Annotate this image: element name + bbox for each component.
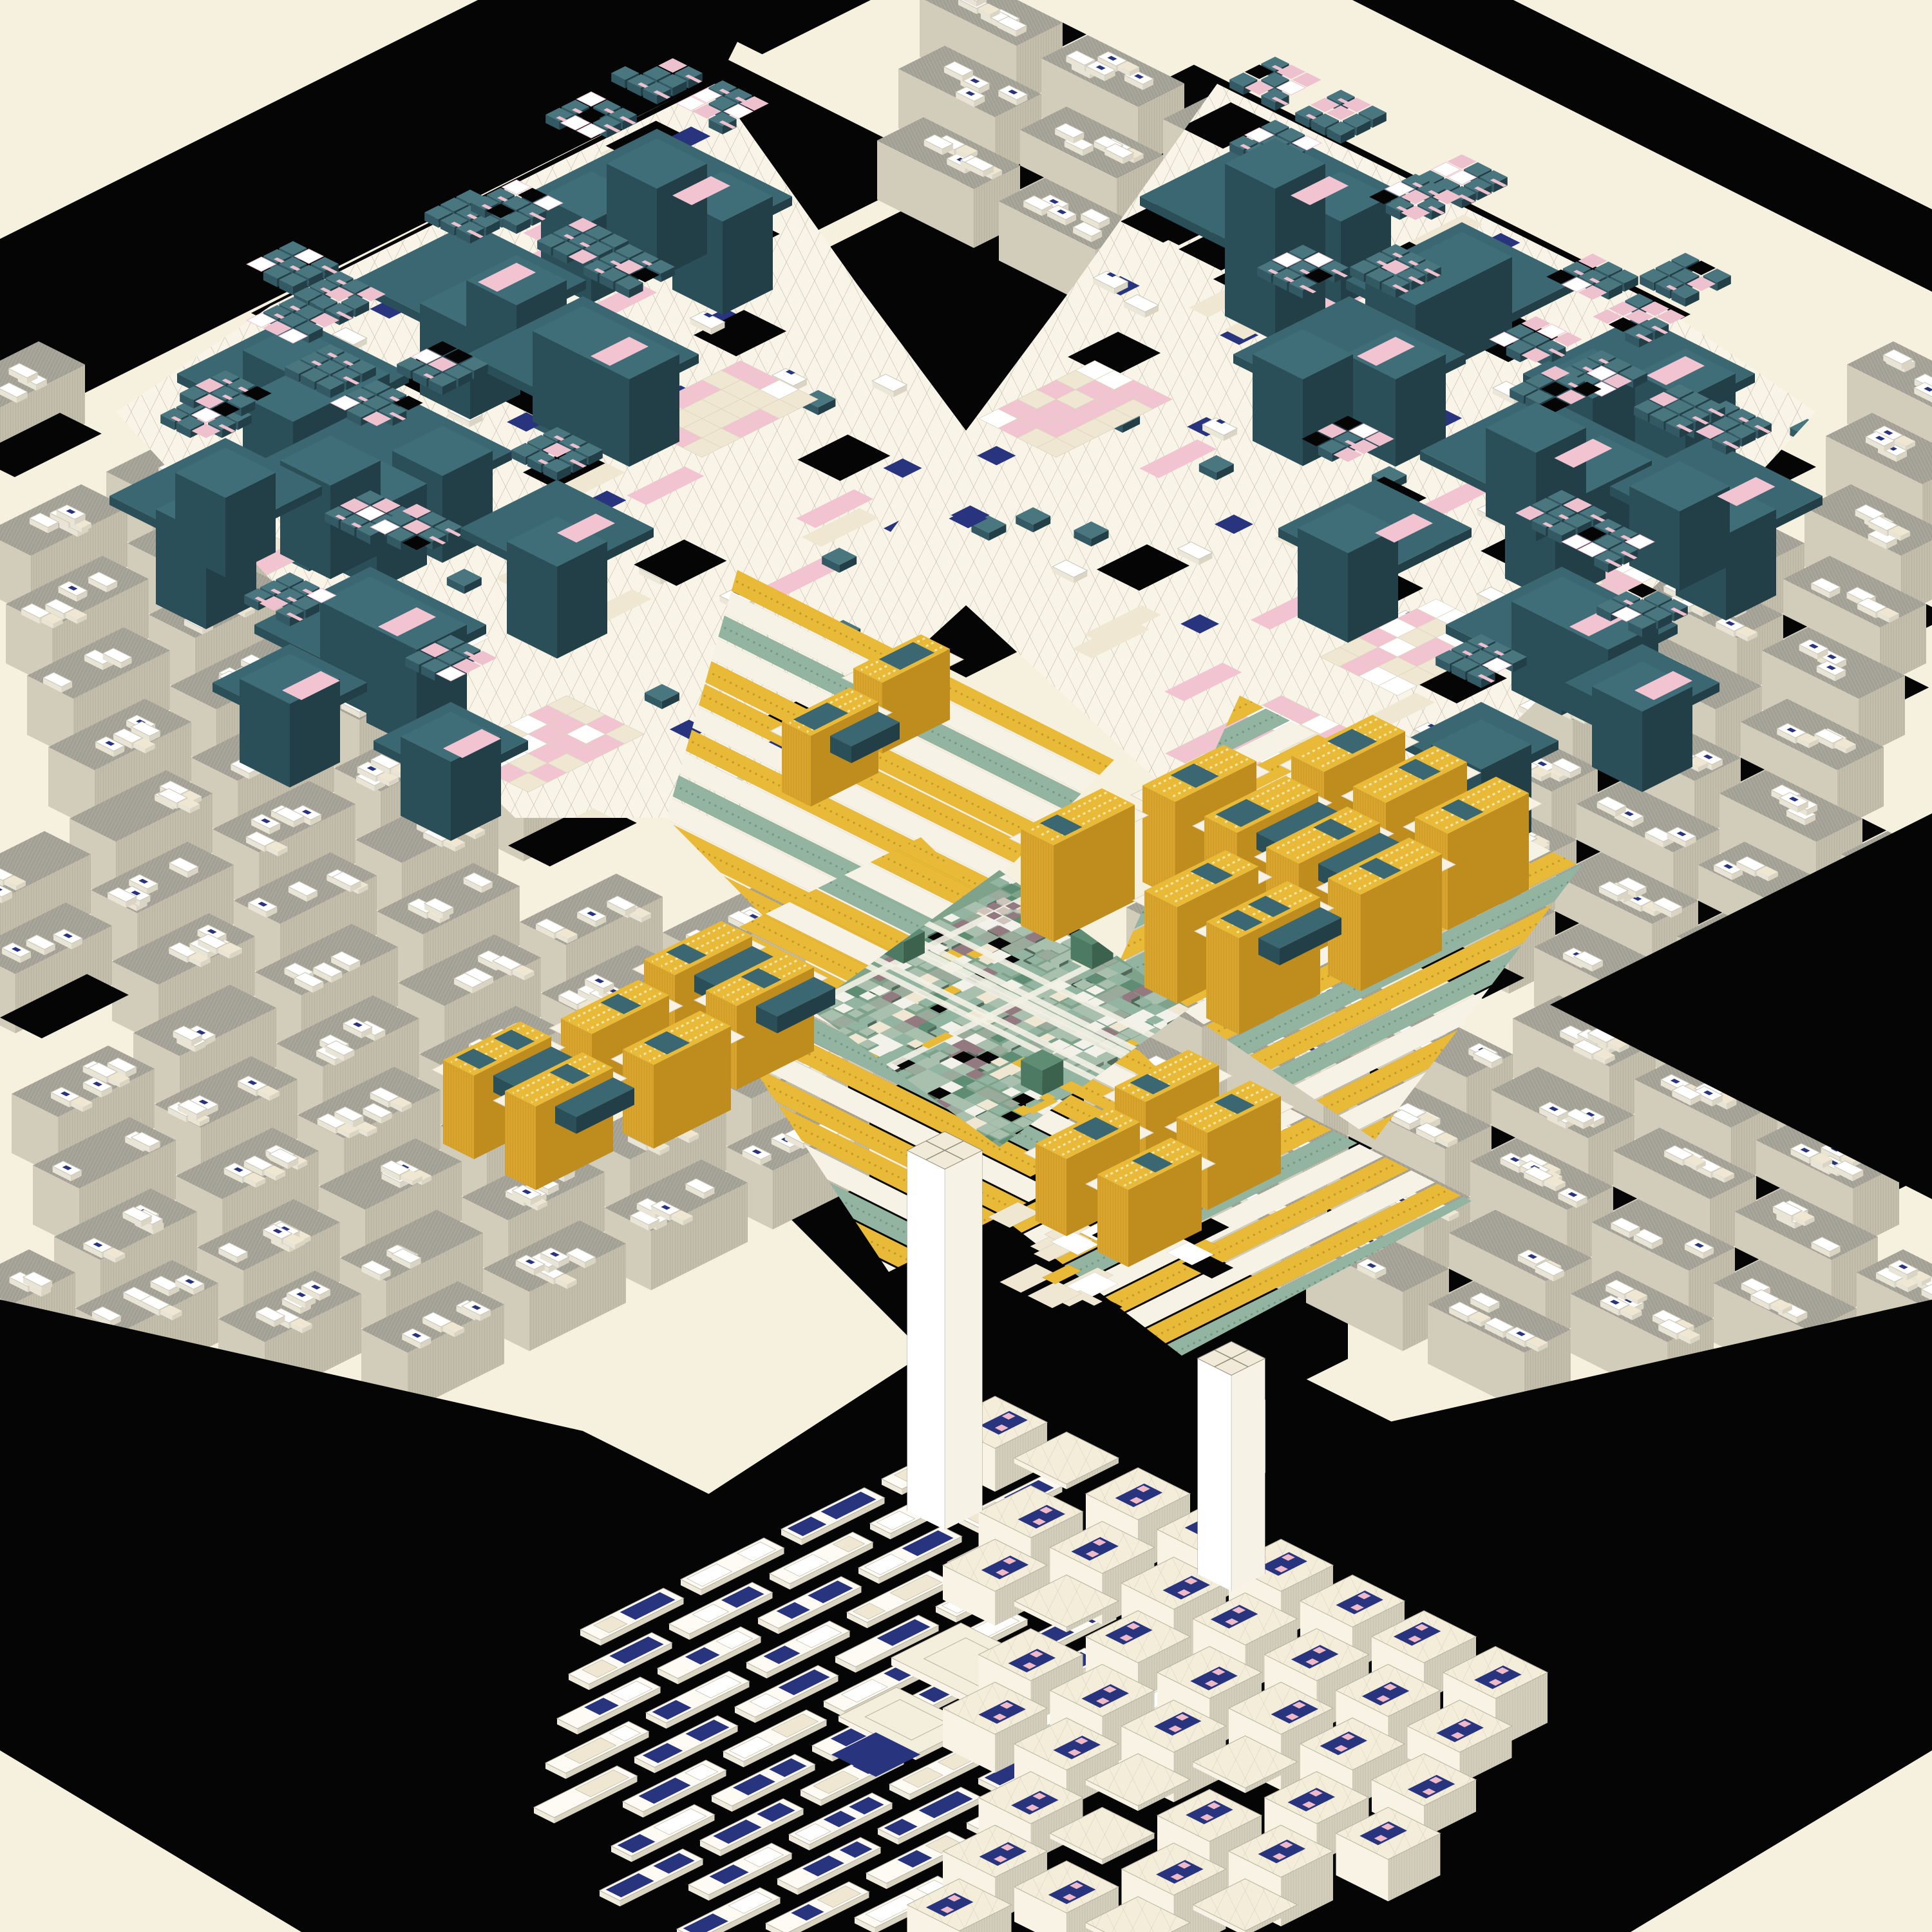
- generative-isometric-city-illustration: [0, 0, 1932, 1932]
- scene-canvas: [0, 0, 1932, 1932]
- white-tower-tall: [907, 1132, 983, 1530]
- white-tower-short: [1198, 1341, 1265, 1591]
